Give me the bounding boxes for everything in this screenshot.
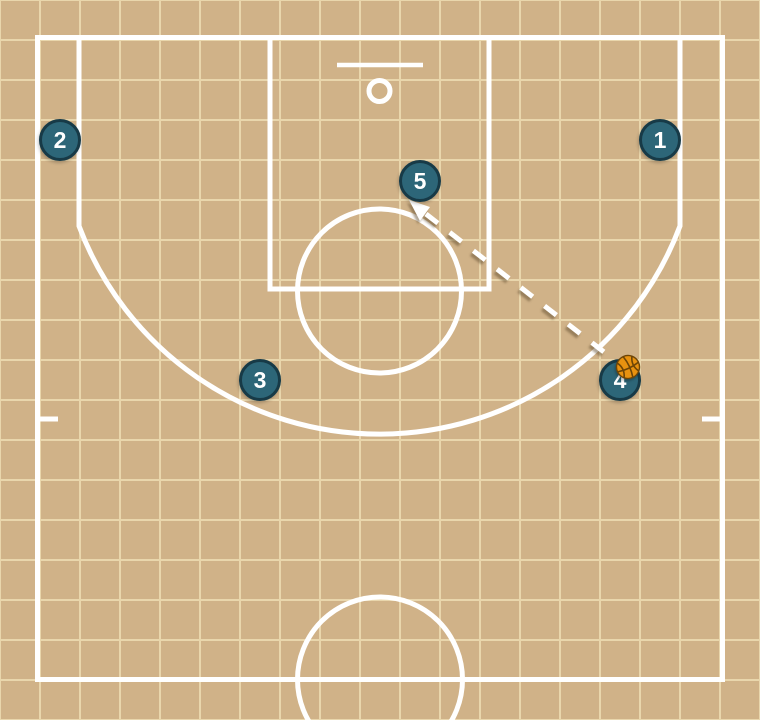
player-marker-2[interactable]: 2 — [39, 119, 81, 161]
court-svg — [0, 0, 760, 720]
player-marker-1[interactable]: 1 — [639, 119, 681, 161]
player-marker-5[interactable]: 5 — [399, 160, 441, 202]
center-circle — [298, 597, 463, 720]
basketball[interactable] — [613, 352, 643, 382]
pass-annotation[interactable] — [409, 200, 613, 359]
basketball-icon — [613, 352, 643, 382]
player-number: 2 — [54, 127, 67, 153]
lane-key — [270, 38, 489, 290]
player-marker-3[interactable]: 3 — [239, 359, 281, 401]
court-board: 1 2 3 4 5 — [0, 0, 760, 720]
player-number: 3 — [254, 367, 267, 393]
player-number: 5 — [414, 168, 427, 194]
player-number: 1 — [654, 127, 667, 153]
rim — [369, 81, 390, 102]
